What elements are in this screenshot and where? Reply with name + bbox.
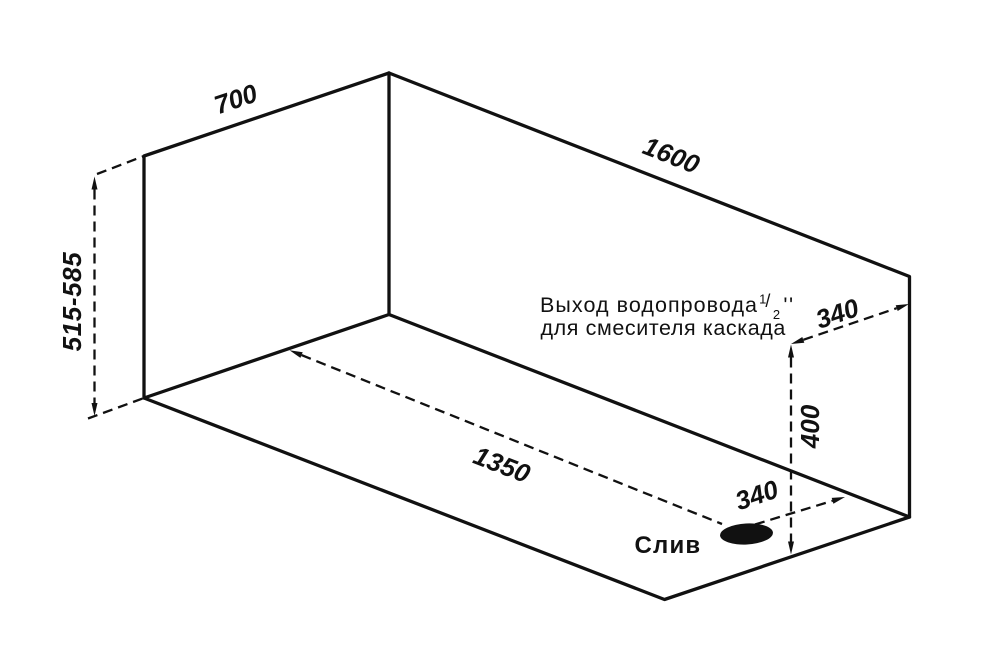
svg-text:Слив: Слив — [635, 532, 702, 559]
svg-text:для смесителя каскада: для смесителя каскада — [541, 316, 787, 340]
svg-text:400: 400 — [795, 404, 825, 449]
svg-text:515-585: 515-585 — [57, 252, 87, 352]
